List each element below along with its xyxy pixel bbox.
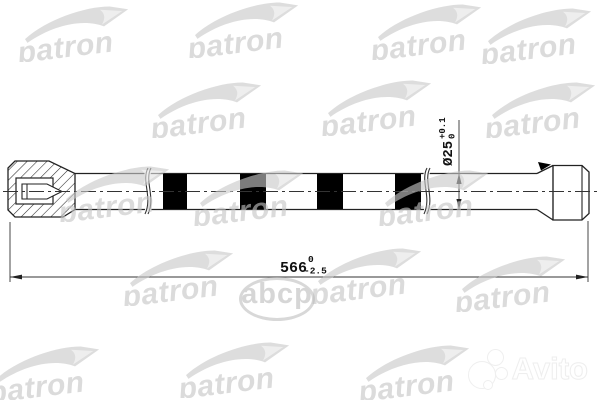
avito-watermark: Avito: [468, 348, 588, 390]
abcp-watermark-text: abcp: [233, 278, 321, 311]
avito-watermark-text: Avito: [512, 351, 588, 387]
technical-drawing: 566 0 -2.5 Ø25 +0.1 0: [0, 0, 600, 400]
abcp-watermark: abcp: [233, 274, 321, 320]
dim-diameter-tol-upper: +0.1: [438, 117, 448, 139]
left-end-block: [8, 161, 75, 217]
avito-circle: [487, 349, 504, 366]
dimension-diameter: Ø25 +0.1 0: [438, 117, 462, 210]
avito-logo-icon: [468, 348, 508, 390]
dimension-length: 566 0 -2.5: [10, 221, 588, 282]
product-image: patron: [0, 0, 600, 400]
avito-circle: [495, 367, 508, 380]
dim-diameter-tol-lower: 0: [448, 134, 458, 139]
dim-length-tol-upper: 0: [308, 254, 314, 265]
dim-diameter-value: Ø25: [441, 141, 457, 166]
avito-circle: [483, 380, 493, 390]
